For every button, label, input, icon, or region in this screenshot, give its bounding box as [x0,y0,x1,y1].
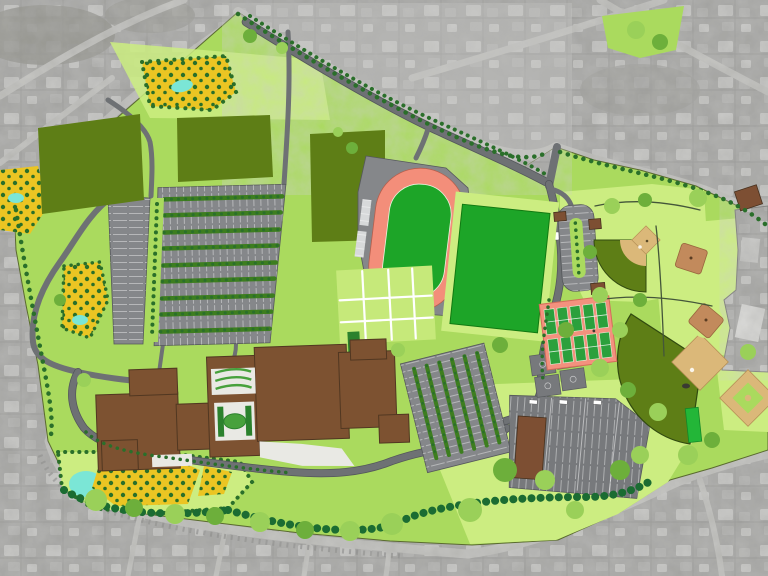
car [529,400,537,405]
tennis-court-complex [539,296,617,370]
south-courtyard [214,402,255,441]
pitchers-mound [690,368,694,372]
car [593,400,601,405]
maintenance-building [514,416,546,480]
pond [8,193,24,203]
basketball-court [560,368,587,391]
car [559,400,567,405]
pond [72,315,88,325]
pitchers-mound [638,245,642,249]
basketball-court [535,374,562,397]
practice-field-center [177,115,273,182]
dugout [589,218,602,229]
north-courtyard [211,367,256,395]
orchard-top [142,56,236,110]
dugout [554,211,567,221]
main-parking-lot [150,184,290,346]
practice-field-west [38,114,144,214]
home-plate-area [682,384,690,389]
pitchers-mound [745,395,751,401]
existing-building-roof [740,237,760,263]
home-plate [646,240,649,243]
site-plan-map [0,0,768,576]
strip-parking-lot [108,196,164,344]
aerial-tree-mass [580,64,700,116]
